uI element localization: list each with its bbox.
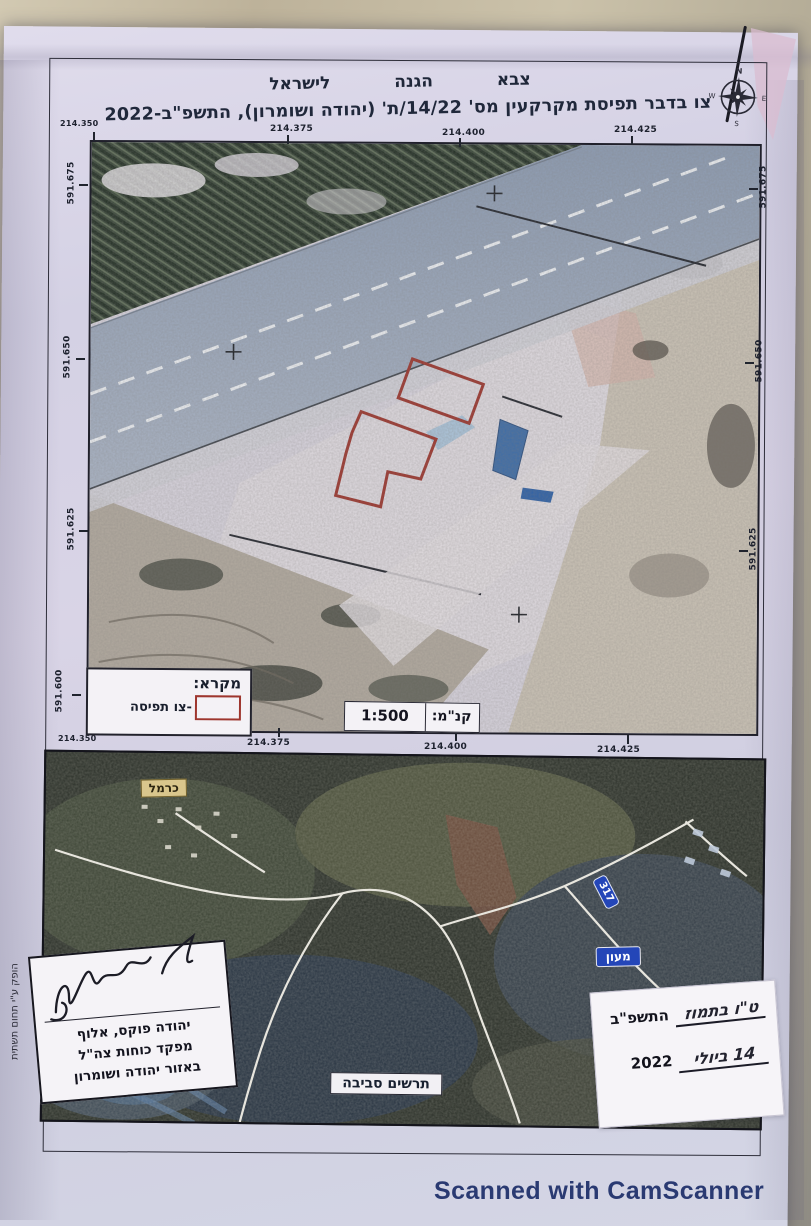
producer-margin-note: הופק ע"י תחום תשתית [10,937,21,1087]
date-printed-hebrew-year: התשפ"ב [610,1006,670,1030]
tick-mark [631,136,633,145]
overview-caption: תרשים סביבה [330,1072,442,1095]
tick-mark [287,135,289,144]
tick-mark [72,694,81,696]
seizure-order-swatch [195,695,241,720]
photo-background: צבא הגנה לישראל צו בדבר תפיסת מקרקעין מס… [0,0,811,1226]
coord-label: 214.400 [424,742,467,752]
coord-label: 214.375 [270,124,313,134]
compass-n: N [736,66,743,75]
tick-mark [79,184,88,186]
compass-e: E [761,95,766,103]
place-label-carmel: כרמל [141,779,187,798]
tick-mark [749,188,758,190]
date-handwritten-hebrew: ט"ו בתמוז [676,996,767,1028]
compass-s: S [734,120,739,128]
signature-box: יהודה פוקס, אלוף מפקד כוחות צה"ל באזור י… [28,940,238,1105]
coord-label: 591.675 [759,165,769,208]
date-handwritten-gregorian: 14 ביולי [679,1042,769,1074]
coord-label: 591.650 [63,335,73,378]
date-line-gregorian: 14 ביולי 2022 [605,1043,770,1076]
legend-item-label: -צו תפיסה [130,700,192,715]
tick-mark [459,138,461,147]
scale-box: קנ"מ: 1:500 [344,701,481,733]
compass-hub [735,94,740,99]
place-label-maon: מעון [596,946,641,967]
tick-mark [278,728,280,737]
tick-mark [455,732,457,741]
coord-label: 591.625 [67,507,77,550]
coord-label: 214.375 [247,738,290,748]
date-box: ט"ו בתמוז התשפ"ב 14 ביולי 2022 [589,980,784,1129]
coord-label: 214.400 [442,128,485,138]
coord-label: 214.350 [60,119,99,128]
tick-mark [76,358,85,360]
tick-mark [739,550,748,552]
camscanner-watermark: Scanned with CamScanner [434,1177,764,1206]
main-map-aerial [86,140,762,736]
coord-label: 591.600 [55,669,65,712]
coord-label: 591.675 [67,161,77,204]
legend-box: מקרא: -צו תפיסה [86,667,252,736]
tick-mark [79,530,88,532]
compass-w: W [708,92,715,100]
compass-rose: N E S W [704,62,771,129]
date-printed-gregorian-year: 2022 [630,1052,673,1075]
coord-label: 214.425 [597,745,640,755]
legend-title: מקרא: [97,673,241,692]
coord-label: 591.650 [755,339,765,382]
scale-value: 1:500 [345,702,426,731]
signature-scribble [31,926,230,1026]
tick-mark [745,362,754,364]
tick-mark [627,735,629,744]
coord-label: 591.625 [749,527,759,570]
aerial-photo [88,142,760,734]
coord-label: 214.425 [614,125,657,135]
scale-label: קנ"מ: [426,703,480,732]
date-line-hebrew: ט"ו בתמוז התשפ"ב [602,997,767,1030]
tick-mark [93,132,95,141]
